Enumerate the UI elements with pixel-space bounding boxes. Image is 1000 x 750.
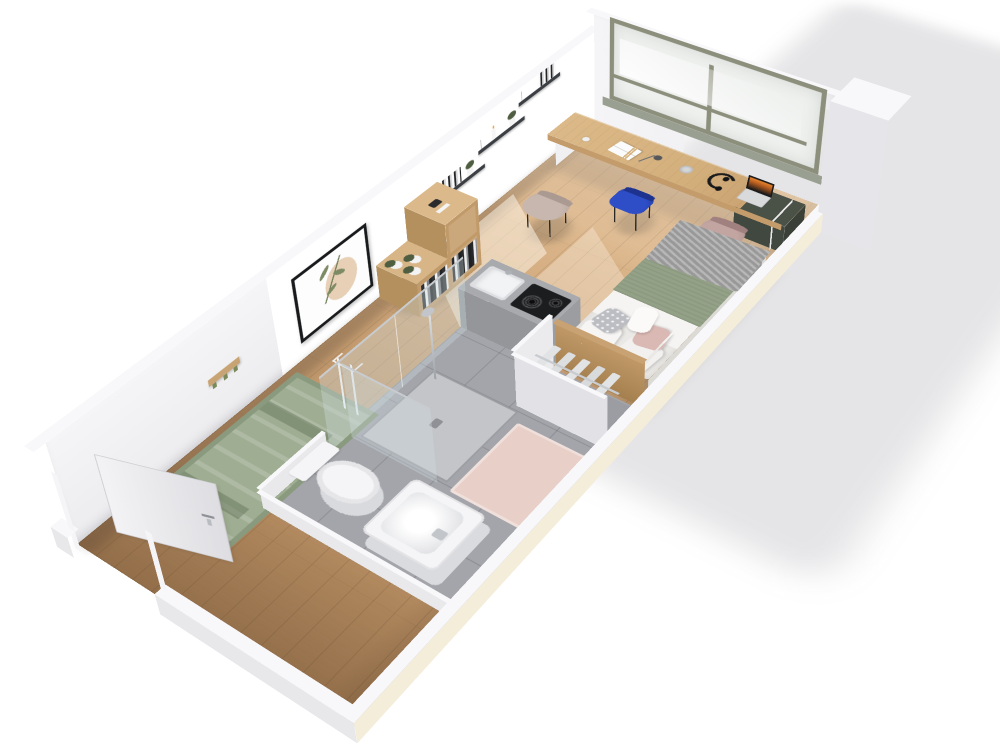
art-circle — [323, 249, 359, 309]
smart-speaker — [677, 164, 695, 175]
open-book — [607, 141, 642, 161]
art-leaf — [318, 264, 330, 282]
carafe — [581, 136, 592, 142]
headphone-pad — [714, 186, 724, 192]
apartment-render — [0, 0, 1000, 750]
scene — [0, 0, 1000, 750]
chair-leg — [635, 212, 637, 231]
coat-hook — [233, 365, 238, 373]
coat-hook — [223, 373, 228, 381]
wall-shelf — [478, 116, 524, 155]
shelf-bracket — [481, 140, 482, 150]
door-handle-plate — [207, 519, 213, 526]
book-spine — [614, 145, 636, 156]
desk-lamp — [652, 154, 664, 161]
burner — [545, 296, 566, 310]
coat-hook — [212, 382, 217, 390]
burner — [516, 292, 547, 312]
shelf-bracket — [521, 91, 522, 101]
glass-seam — [394, 316, 402, 388]
